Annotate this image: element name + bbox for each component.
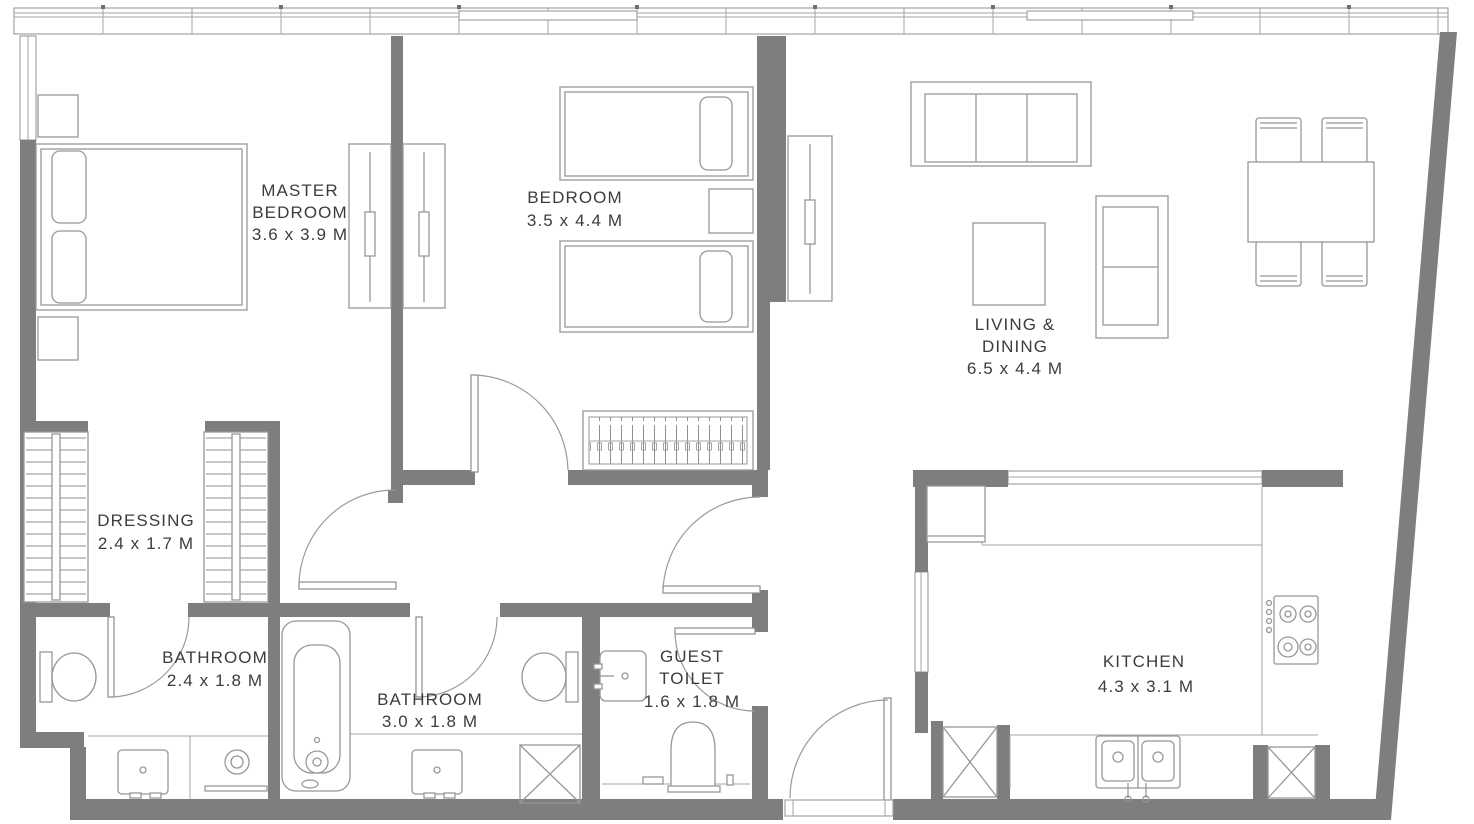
wardrobe-cabinet: [349, 144, 391, 308]
label-guest-toilet-dims: 1.6 x 1.8 M: [644, 692, 740, 711]
dining-chair: [1256, 241, 1301, 286]
washbasin: [594, 651, 646, 701]
label-bedroom-dims: 3.5 x 4.4 M: [527, 211, 623, 230]
room-living-dining: [911, 82, 1374, 338]
exterior-wall-right-slanted: [1374, 32, 1457, 820]
sofa: [911, 82, 1091, 166]
label-guest-toilet-name1: GUEST: [660, 647, 724, 666]
door-bedroom: [471, 375, 568, 472]
pillow: [700, 251, 732, 322]
label-living-name2: DINING: [982, 337, 1048, 356]
entrance-threshold: [785, 800, 893, 816]
pillow: [52, 151, 86, 223]
label-living-name1: LIVING &: [975, 315, 1056, 334]
single-bed: [560, 87, 753, 180]
room-master-bedroom: [36, 95, 445, 360]
room-bedroom: [560, 87, 832, 470]
dining-chair: [1322, 241, 1367, 286]
sliding-window-panel: [459, 11, 637, 20]
dining-table: [1248, 162, 1374, 242]
dining-chair: [1322, 118, 1367, 163]
service-shaft: [1268, 747, 1315, 798]
label-master-bedroom-name2: BEDROOM: [252, 203, 348, 222]
exterior-wall-bottom: [70, 799, 783, 820]
label-kitchen-dims: 4.3 x 3.1 M: [1098, 677, 1194, 696]
kitchen-sink: [1096, 736, 1180, 802]
door-hallway: [663, 497, 760, 593]
kitchen-partition-window: [915, 572, 928, 672]
wardrobe-cabinet: [403, 144, 445, 308]
label-living-dims: 6.5 x 4.4 M: [967, 359, 1063, 378]
door-master-bedroom: [299, 490, 396, 589]
label-master-bedroom-dims: 3.6 x 3.9 M: [252, 225, 348, 244]
single-bed: [560, 241, 753, 332]
toilet: [522, 652, 578, 702]
fridge: [927, 486, 985, 542]
dining-chair: [1256, 118, 1301, 163]
toilet: [40, 652, 96, 702]
floor-plan-page: MASTER BEDROOM 3.6 x 3.9 M BEDROOM 3.5 x…: [0, 0, 1474, 824]
label-dressing-dims: 2.4 x 1.7 M: [98, 534, 194, 553]
label-guest-toilet-name2: TOILET: [659, 669, 725, 688]
window-band: [14, 5, 1448, 34]
door-bathroom-main: [416, 617, 497, 697]
label-dressing-name: DRESSING: [97, 511, 195, 530]
shower-head: [205, 750, 267, 791]
kitchen-serving-window: [1008, 471, 1262, 484]
label-kitchen-name: KITCHEN: [1103, 652, 1185, 671]
nightstand: [38, 317, 78, 360]
room-bathroom-main: [282, 621, 578, 798]
label-master-bedroom-name1: MASTER: [261, 181, 338, 200]
toilet: [643, 722, 733, 792]
wardrobe-cabinet: [788, 136, 832, 301]
sliding-window-panel: [1027, 11, 1193, 20]
label-bathroom-master-name: BATHROOM: [162, 648, 268, 667]
label-bedroom-name: BEDROOM: [527, 188, 623, 207]
pillow: [52, 231, 86, 303]
service-shaft: [943, 727, 997, 797]
service-shaft: [520, 745, 580, 803]
label-bathroom-main-name: BATHROOM: [377, 690, 483, 709]
closet-hanging-rail: [583, 411, 753, 470]
label-bathroom-master-dims: 2.4 x 1.8 M: [167, 671, 263, 690]
nightstand: [709, 189, 753, 233]
double-bed: [36, 144, 247, 310]
gas-hob: [1267, 596, 1319, 664]
wardrobe-shelving: [24, 432, 88, 602]
coffee-table: [973, 223, 1045, 305]
vanity-sink: [412, 750, 462, 798]
vanity-sink: [118, 750, 168, 798]
label-bathroom-main-dims: 3.0 x 1.8 M: [382, 712, 478, 731]
entrance-door: [790, 698, 891, 800]
nightstand: [38, 95, 78, 137]
bathtub: [282, 621, 350, 791]
wardrobe-shelving: [204, 432, 268, 602]
left-wall-window: [20, 36, 36, 140]
loveseat: [1096, 196, 1168, 338]
pillow: [700, 97, 732, 170]
floor-plan-drawing: MASTER BEDROOM 3.6 x 3.9 M BEDROOM 3.5 x…: [0, 0, 1474, 824]
